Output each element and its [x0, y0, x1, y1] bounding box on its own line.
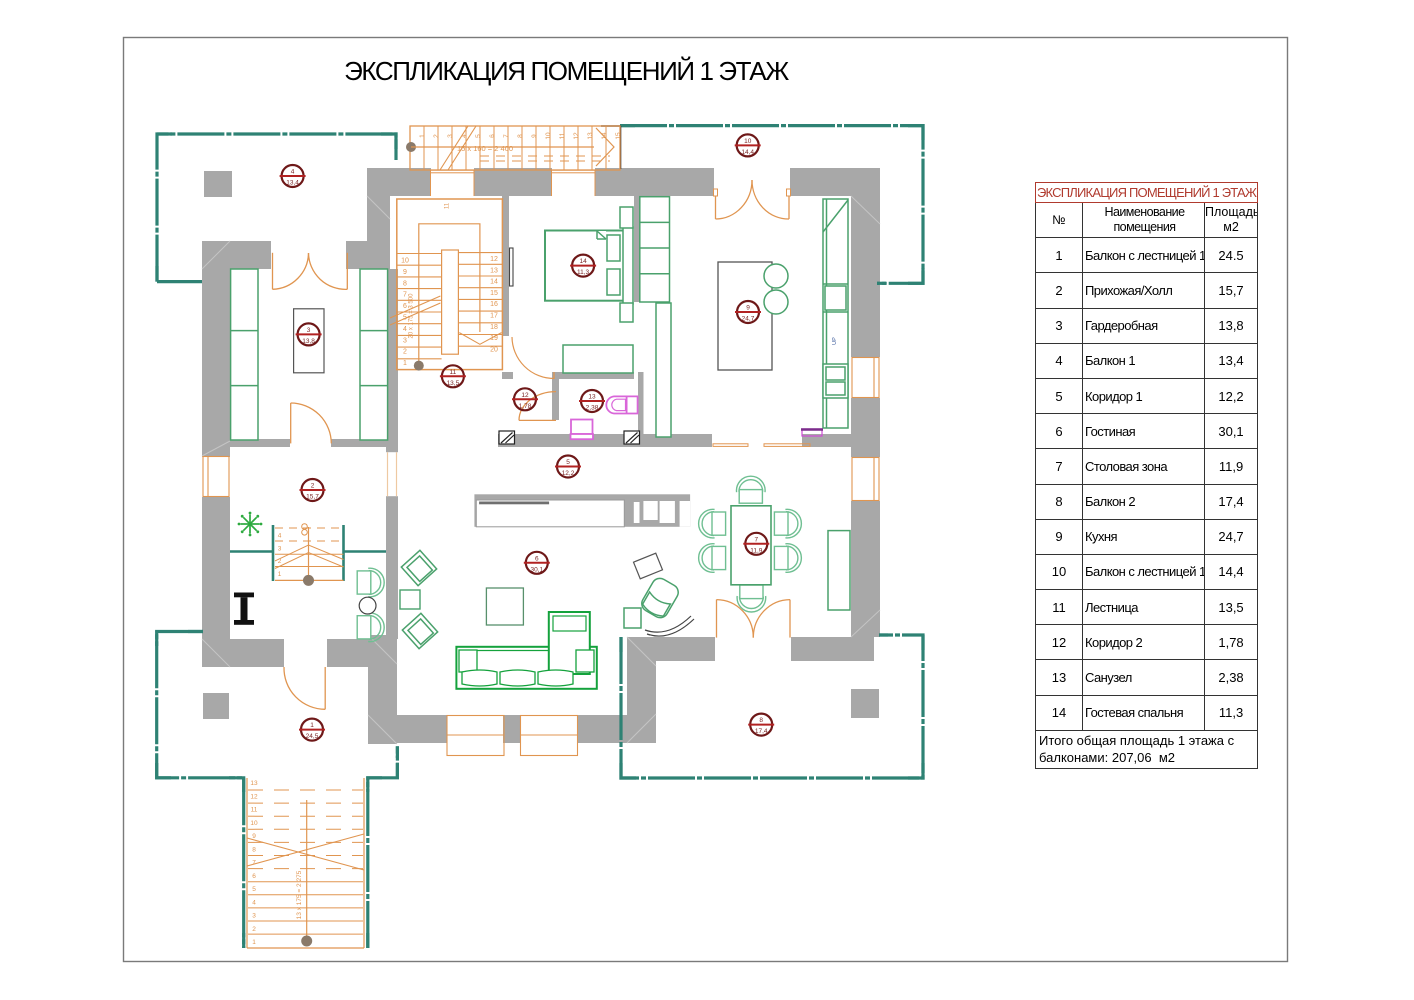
svg-text:6: 6: [403, 303, 407, 310]
svg-text:1,78: 1,78: [519, 403, 532, 410]
svg-text:16: 16: [490, 301, 498, 308]
svg-text:7: 7: [503, 134, 510, 138]
svg-text:12,2: 12,2: [562, 470, 575, 477]
svg-text:4: 4: [252, 899, 256, 906]
svg-text:15: 15: [615, 132, 622, 140]
svg-text:4: 4: [291, 169, 295, 176]
svg-text:15: 15: [490, 290, 498, 297]
svg-text:9: 9: [403, 269, 407, 276]
svg-text:2,38: 2,38: [586, 405, 599, 412]
svg-text:7: 7: [754, 536, 758, 543]
svg-text:12: 12: [490, 256, 498, 263]
svg-text:3: 3: [252, 913, 256, 920]
svg-text:4: 4: [403, 326, 407, 333]
svg-text:2: 2: [311, 483, 315, 490]
svg-text:8: 8: [252, 846, 256, 853]
svg-text:8: 8: [403, 280, 407, 287]
svg-text:2: 2: [403, 349, 407, 356]
svg-text:8: 8: [759, 717, 763, 724]
svg-text:3: 3: [403, 337, 407, 344]
svg-text:1: 1: [310, 722, 314, 729]
svg-text:13,5: 13,5: [447, 380, 460, 387]
svg-text:9: 9: [531, 134, 538, 138]
svg-text:11: 11: [445, 202, 451, 209]
svg-text:13 x 175 = 2 275: 13 x 175 = 2 275: [296, 870, 303, 919]
svg-text:14: 14: [490, 279, 498, 286]
svg-text:UP: UP: [832, 337, 838, 345]
svg-text:13,4: 13,4: [286, 180, 299, 187]
svg-text:13: 13: [250, 780, 258, 787]
svg-text:4: 4: [278, 533, 282, 540]
svg-text:2: 2: [433, 134, 440, 138]
svg-text:11: 11: [251, 807, 258, 814]
svg-text:11,9: 11,9: [750, 547, 763, 554]
svg-text:19: 19: [490, 335, 498, 342]
svg-text:11: 11: [450, 369, 457, 376]
svg-text:1: 1: [419, 134, 426, 138]
svg-text:12: 12: [250, 793, 258, 800]
svg-text:10: 10: [545, 132, 552, 140]
svg-text:3: 3: [447, 134, 454, 138]
svg-text:12: 12: [521, 392, 529, 399]
svg-text:17: 17: [490, 313, 498, 320]
svg-text:14,4: 14,4: [741, 149, 754, 156]
svg-text:11: 11: [559, 132, 566, 139]
svg-text:10: 10: [250, 820, 258, 827]
svg-text:2: 2: [252, 926, 256, 933]
svg-text:15 x 160 = 2 400: 15 x 160 = 2 400: [457, 144, 513, 153]
svg-text:7: 7: [403, 292, 407, 299]
svg-text:30,1: 30,1: [530, 566, 543, 573]
svg-text:1: 1: [252, 939, 256, 946]
svg-text:17,4: 17,4: [755, 728, 768, 735]
svg-text:12: 12: [573, 132, 580, 140]
svg-text:3: 3: [278, 545, 282, 552]
svg-text:18: 18: [490, 324, 498, 331]
svg-text:14: 14: [579, 258, 587, 265]
svg-text:10: 10: [401, 258, 409, 265]
svg-text:13: 13: [588, 394, 596, 401]
svg-text:5: 5: [566, 459, 570, 466]
svg-text:11,3: 11,3: [577, 269, 590, 276]
svg-text:5: 5: [475, 134, 482, 138]
svg-text:3: 3: [307, 327, 311, 334]
svg-text:13,8: 13,8: [302, 338, 315, 345]
svg-text:14: 14: [601, 132, 608, 140]
svg-text:9: 9: [746, 305, 750, 312]
svg-text:24,5: 24,5: [306, 733, 319, 740]
svg-text:13: 13: [490, 267, 498, 274]
svg-text:15,7: 15,7: [306, 494, 319, 501]
svg-text:1: 1: [278, 571, 282, 578]
svg-text:20: 20: [490, 346, 498, 353]
svg-text:8: 8: [517, 134, 524, 138]
svg-text:5: 5: [252, 886, 256, 893]
svg-text:24,7: 24,7: [742, 316, 755, 323]
svg-text:6: 6: [489, 134, 496, 138]
svg-text:10: 10: [744, 138, 752, 145]
svg-text:13: 13: [587, 132, 594, 140]
svg-text:6: 6: [252, 873, 256, 880]
svg-text:6: 6: [535, 555, 539, 562]
svg-text:1: 1: [403, 360, 407, 367]
